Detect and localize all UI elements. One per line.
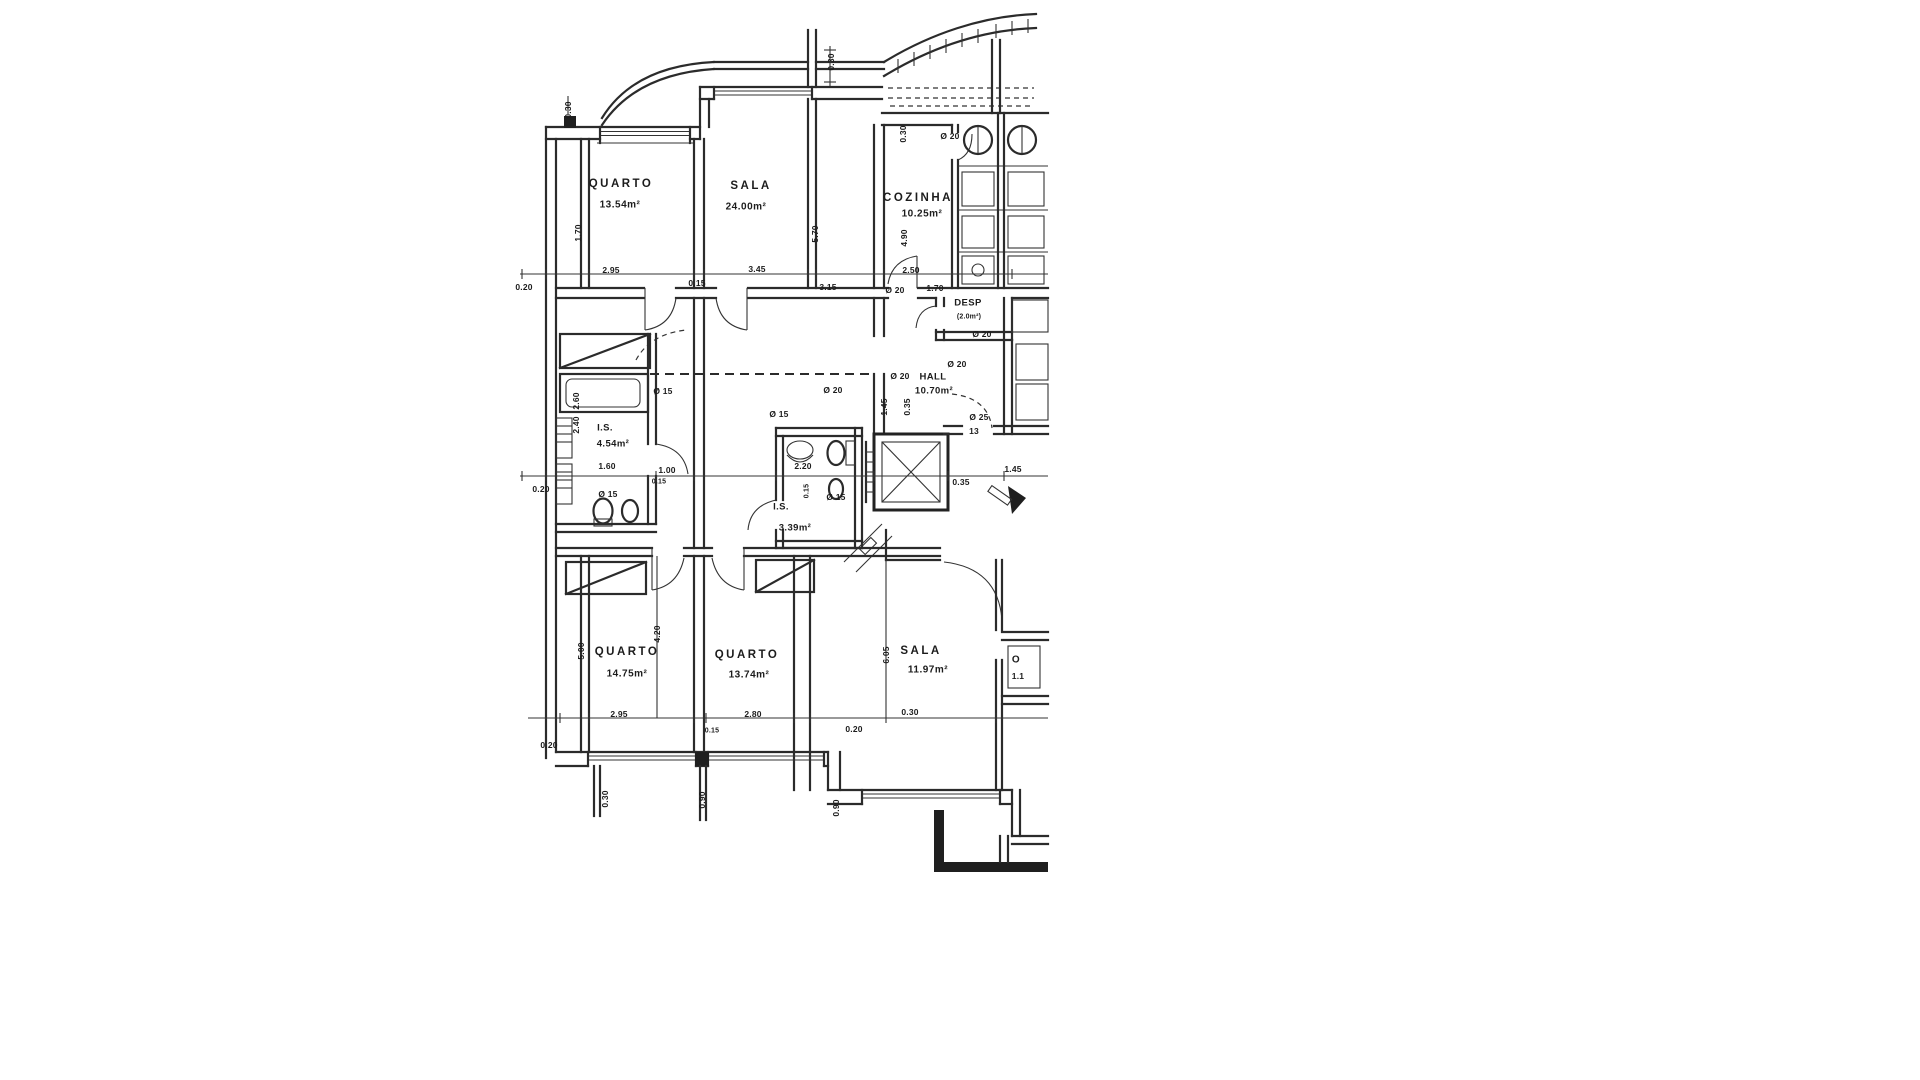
dim-label: 2.60: [571, 392, 581, 409]
dim-label: 2.80: [744, 709, 761, 719]
area-label-quarto-3: 13.74m²: [729, 670, 770, 681]
dim-label: Ø 15: [653, 386, 672, 396]
dim-label: 0.35: [902, 398, 912, 415]
dim-label: 0.15: [705, 728, 719, 735]
floorplan-page: QUARTO13.54m²SALA24.00m²COZINHA10.25m²DE…: [0, 0, 1920, 1080]
duct-box: [1016, 344, 1048, 380]
cut-room-box: [1008, 646, 1040, 688]
door-arc-desp: [916, 306, 936, 328]
dim-label: 0.20: [515, 282, 532, 292]
room-label-is-2: I.S.: [773, 502, 789, 513]
dim-label: 3.45: [748, 264, 765, 274]
dim-label: 6.05: [881, 646, 891, 663]
dim-label: 2.95: [610, 709, 627, 719]
room-label-quarto-3: QUARTO: [715, 649, 780, 661]
dim-label: 0.15: [652, 479, 666, 486]
dim-label: Ø 20: [890, 371, 909, 381]
dim-label: 0.20: [540, 740, 557, 750]
wall-pier: [695, 752, 709, 766]
room-label-cut: O: [1012, 655, 1020, 666]
area-label-cozinha: 10.25m²: [902, 209, 943, 220]
floorplan-drawing: [0, 0, 1920, 1080]
room-label-desp: DESP: [954, 298, 981, 309]
appliance-box: [1008, 216, 1044, 248]
elevator-shaft: [866, 434, 948, 510]
dim-label: 1.60: [598, 461, 615, 471]
door-arc-quarto-3: [712, 558, 744, 590]
balcony-arc-large: [884, 14, 1036, 113]
dim-label: 0.20: [532, 484, 549, 494]
dim-label: 2.95: [602, 265, 619, 275]
appliance-box: [962, 256, 994, 284]
room-label-quarto-2: QUARTO: [595, 646, 660, 658]
door-swing-dashed: [952, 394, 992, 428]
dim-label: 0.20: [845, 724, 862, 734]
room-label-quarto-1: QUARTO: [589, 178, 654, 190]
area-label-quarto-1: 13.54m²: [600, 200, 641, 211]
room-label-cozinha: COZINHA: [883, 192, 953, 204]
room-label-sala-1: SALA: [730, 180, 771, 192]
dim-label: 0.15: [688, 278, 705, 288]
dim-label: 0.30: [826, 53, 836, 70]
shelf-unit: [556, 464, 572, 504]
dim-label: Ø 25: [969, 412, 988, 422]
appliance-box: [1008, 172, 1044, 206]
dim-label: Ø 20: [972, 329, 991, 339]
window-sala-1: [714, 87, 812, 99]
toilet-icon: [828, 441, 845, 465]
door-arc-bathroom-small: [748, 500, 776, 530]
duct-box: [1016, 384, 1048, 420]
dim-label: 0.30: [898, 125, 908, 142]
dim-label: 0.30: [901, 707, 918, 717]
wall-poche: [934, 810, 944, 872]
room-label-is-1: I.S.: [597, 423, 613, 434]
dim-label: Ø 20: [885, 285, 904, 295]
dim-label: 0.15: [804, 484, 811, 498]
dim-label: 3.15: [819, 282, 836, 292]
shelf-unit: [556, 418, 572, 458]
dim-label: 5.00: [576, 642, 586, 659]
dim-label: 0.90: [697, 791, 707, 808]
closet-diagonal: [560, 334, 650, 368]
dim-label: 1.1: [1012, 671, 1024, 681]
duct-box: [1012, 300, 1048, 332]
dim-label: 1.45: [879, 398, 889, 415]
area-label-is-2: 3.39m²: [779, 523, 812, 534]
area-label-desp: (2.0m²): [957, 314, 981, 321]
door-arc-quarto-1: [645, 298, 676, 330]
dim-label: 1.00: [658, 465, 675, 475]
dim-label: 5.70: [810, 225, 820, 242]
appliance-box: [962, 172, 994, 206]
dim-label: Ø 20: [940, 131, 959, 141]
dim-label: 4.20: [652, 625, 662, 642]
washbasin-icon: [787, 441, 813, 459]
entry-door-leaf: [988, 486, 1012, 505]
room-label-hall: HALL: [920, 372, 947, 383]
dim-label: 0.35: [952, 477, 969, 487]
window-quarto-1: [597, 127, 693, 143]
area-label-hall: 10.70m²: [915, 386, 953, 397]
dim-label: 1.70: [926, 283, 943, 293]
appliance-box: [1008, 256, 1044, 284]
closet-diagonal: [566, 562, 646, 594]
closet-diagonal: [756, 560, 814, 592]
wall-poche: [944, 862, 1048, 872]
dim-label: Ø 20: [823, 385, 842, 395]
area-label-sala-2: 11.97m²: [908, 665, 948, 676]
dim-label: 13: [969, 426, 979, 436]
dim-label: 2.50: [902, 265, 919, 275]
appliance-box: [962, 216, 994, 248]
dim-label: 0.90: [831, 799, 841, 816]
exterior-wall-bottom: [556, 752, 1048, 872]
bidet-icon: [622, 500, 638, 522]
toilet-icon: [594, 499, 613, 524]
dim-label: Ø 20: [947, 359, 966, 369]
dim-label: 1.45: [1004, 464, 1021, 474]
dim-label: 0.30: [563, 101, 573, 118]
toilet-tank: [846, 441, 855, 465]
room-label-sala-2: SALA: [900, 645, 941, 657]
dim-label: 0.30: [600, 790, 610, 807]
dim-label: Ø 15: [769, 409, 788, 419]
dim-label: 1.70: [573, 224, 583, 241]
dim-label: 4.90: [899, 229, 909, 246]
area-label-sala-1: 24.00m²: [726, 202, 767, 213]
door-arc-sala-1: [716, 298, 747, 330]
dim-label: Ø 15: [598, 489, 617, 499]
dim-label: Ø 15: [826, 492, 845, 502]
dim-label: 2.40: [571, 416, 581, 433]
dim-label: 2.20: [794, 461, 811, 471]
balcony-arc-small: [602, 62, 884, 125]
area-label-quarto-2: 14.75m²: [607, 669, 648, 680]
area-label-is-1: 4.54m²: [597, 439, 630, 450]
door-arc-sala-2: [944, 562, 1002, 620]
